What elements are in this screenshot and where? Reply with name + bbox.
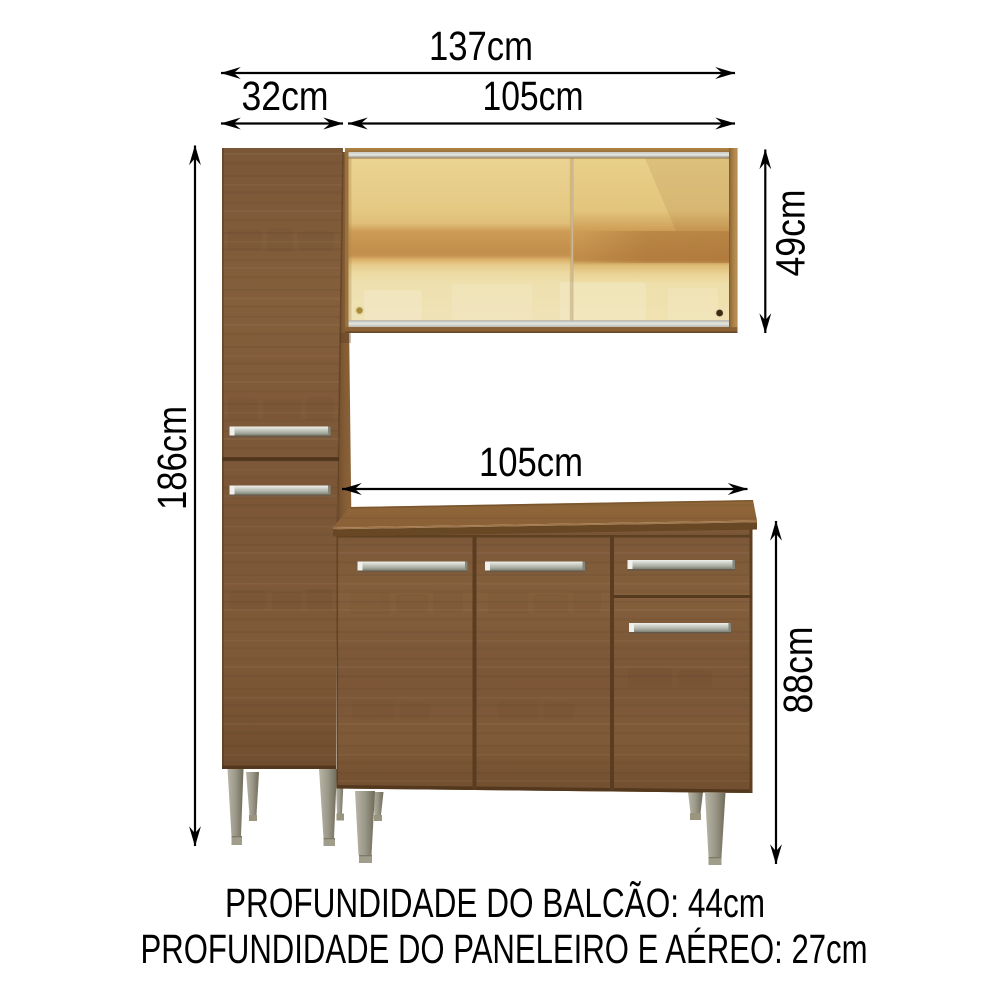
svg-text:PROFUNDIDADE DO BALCÃO: 44cm: PROFUNDIDADE DO BALCÃO: 44cm	[225, 880, 765, 926]
svg-text:105cm: 105cm	[479, 439, 583, 485]
svg-text:105cm: 105cm	[483, 73, 584, 119]
svg-text:186cm: 186cm	[149, 406, 195, 510]
svg-text:88cm: 88cm	[775, 627, 821, 714]
svg-text:PROFUNDIDADE DO PANELEIRO E AÉ: PROFUNDIDADE DO PANELEIRO E AÉREO: 27cm	[141, 926, 868, 972]
svg-text:49cm: 49cm	[768, 190, 814, 277]
svg-text:32cm: 32cm	[242, 73, 329, 119]
svg-text:137cm: 137cm	[429, 23, 533, 69]
